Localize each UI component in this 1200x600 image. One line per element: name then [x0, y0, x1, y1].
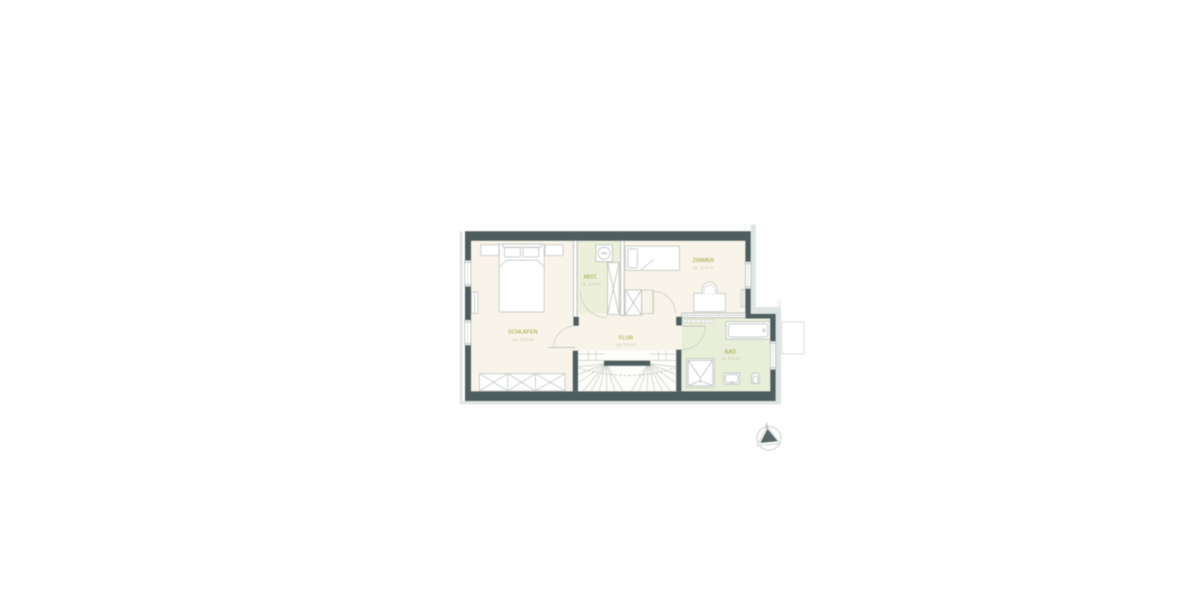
svg-text:ABST.: ABST.	[584, 275, 598, 281]
svg-text:ca. 4,0 m²: ca. 4,0 m²	[581, 281, 601, 286]
svg-text:ca. 15,0 m²: ca. 15,0 m²	[513, 337, 535, 342]
svg-text:ZIMMER: ZIMMER	[693, 258, 715, 264]
svg-text:ca. 11,0 m²: ca. 11,0 m²	[693, 265, 715, 270]
svg-text:FLUR: FLUR	[619, 336, 633, 342]
svg-text:WM: WM	[601, 252, 607, 256]
svg-text:SCHLAFEN: SCHLAFEN	[508, 330, 538, 336]
svg-text:BAD: BAD	[725, 350, 736, 356]
svg-text:ca. 5,6 m²: ca. 5,6 m²	[616, 342, 636, 347]
svg-text:ca. 5,0 m²: ca. 5,0 m²	[721, 356, 741, 361]
